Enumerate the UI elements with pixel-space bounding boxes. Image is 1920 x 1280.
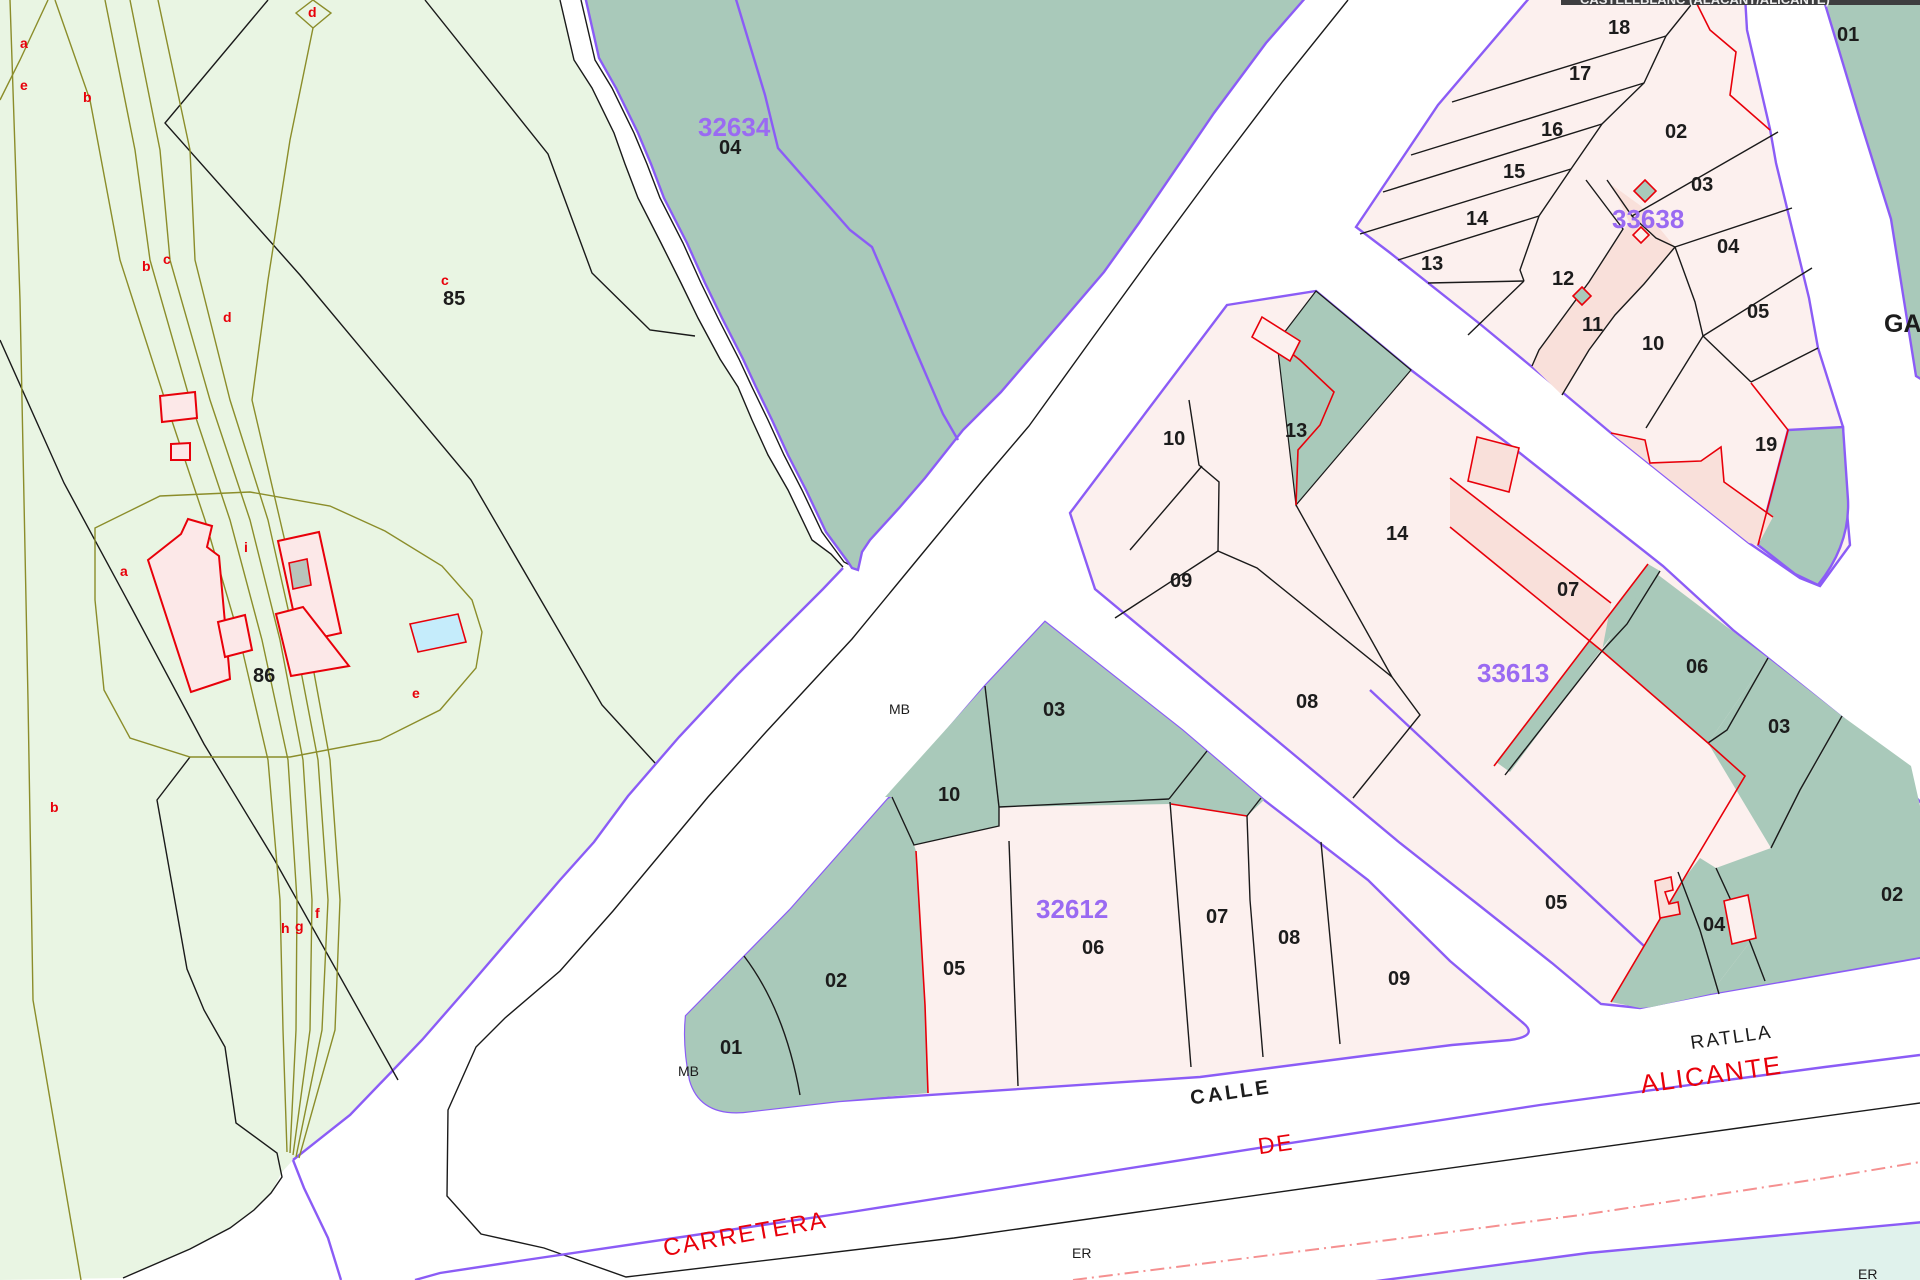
svg-text:i: i: [244, 539, 248, 555]
svg-text:MB: MB: [678, 1063, 699, 1079]
svg-text:12: 12: [1552, 268, 1574, 290]
svg-text:f: f: [315, 905, 320, 921]
svg-text:15: 15: [1503, 161, 1525, 183]
svg-text:GA: GA: [1884, 310, 1920, 338]
svg-text:11: 11: [1582, 314, 1603, 336]
svg-text:33613: 33613: [1477, 658, 1549, 688]
svg-text:10: 10: [1642, 333, 1664, 355]
svg-text:05: 05: [1747, 301, 1769, 323]
svg-text:85: 85: [443, 288, 465, 310]
svg-text:d: d: [223, 309, 232, 325]
svg-text:c: c: [441, 272, 449, 288]
svg-text:ER: ER: [1858, 1266, 1877, 1280]
svg-text:06: 06: [1082, 937, 1104, 959]
svg-text:04: 04: [1717, 236, 1740, 258]
svg-text:c: c: [163, 251, 171, 267]
svg-text:01: 01: [1837, 24, 1859, 46]
svg-text:h: h: [281, 920, 290, 936]
svg-text:e: e: [20, 77, 28, 93]
svg-text:03: 03: [1768, 716, 1790, 738]
svg-text:07: 07: [1557, 579, 1579, 601]
svg-text:b: b: [83, 89, 92, 105]
svg-text:e: e: [412, 685, 420, 701]
svg-text:13: 13: [1285, 420, 1307, 442]
svg-text:03: 03: [1691, 174, 1713, 196]
svg-text:18: 18: [1608, 17, 1630, 39]
svg-text:05: 05: [943, 958, 965, 980]
svg-text:33638: 33638: [1612, 204, 1684, 234]
svg-text:04: 04: [1703, 914, 1726, 936]
svg-text:08: 08: [1296, 691, 1318, 713]
svg-text:16: 16: [1541, 119, 1563, 141]
svg-text:05: 05: [1545, 892, 1567, 914]
svg-text:09: 09: [1170, 570, 1192, 592]
svg-text:b: b: [50, 799, 59, 815]
svg-text:14: 14: [1386, 523, 1409, 545]
svg-text:ER: ER: [1072, 1245, 1091, 1261]
svg-text:g: g: [295, 918, 304, 934]
svg-text:07: 07: [1206, 906, 1228, 928]
svg-text:86: 86: [253, 665, 275, 687]
svg-text:CASTELLBLANC (ALACANT/ALICANTE: CASTELLBLANC (ALACANT/ALICANTE): [1580, 0, 1830, 7]
svg-text:14: 14: [1466, 208, 1489, 230]
svg-text:b: b: [142, 258, 151, 274]
svg-text:19: 19: [1755, 434, 1777, 456]
svg-text:01: 01: [720, 1037, 742, 1059]
svg-text:d: d: [308, 4, 317, 20]
svg-text:13: 13: [1421, 253, 1443, 275]
svg-text:10: 10: [938, 784, 960, 806]
svg-text:17: 17: [1569, 63, 1591, 85]
svg-text:10: 10: [1163, 428, 1185, 450]
svg-text:03: 03: [1043, 699, 1065, 721]
svg-text:08: 08: [1278, 927, 1300, 949]
svg-text:DE: DE: [1256, 1128, 1295, 1159]
svg-text:a: a: [120, 563, 128, 579]
svg-text:a: a: [20, 35, 28, 51]
svg-text:02: 02: [825, 970, 847, 992]
svg-text:06: 06: [1686, 656, 1708, 678]
svg-text:02: 02: [1665, 121, 1687, 143]
svg-text:04: 04: [719, 137, 742, 159]
svg-text:32612: 32612: [1036, 894, 1108, 924]
svg-text:09: 09: [1388, 968, 1410, 990]
svg-text:MB: MB: [889, 701, 910, 717]
svg-text:02: 02: [1881, 884, 1903, 906]
